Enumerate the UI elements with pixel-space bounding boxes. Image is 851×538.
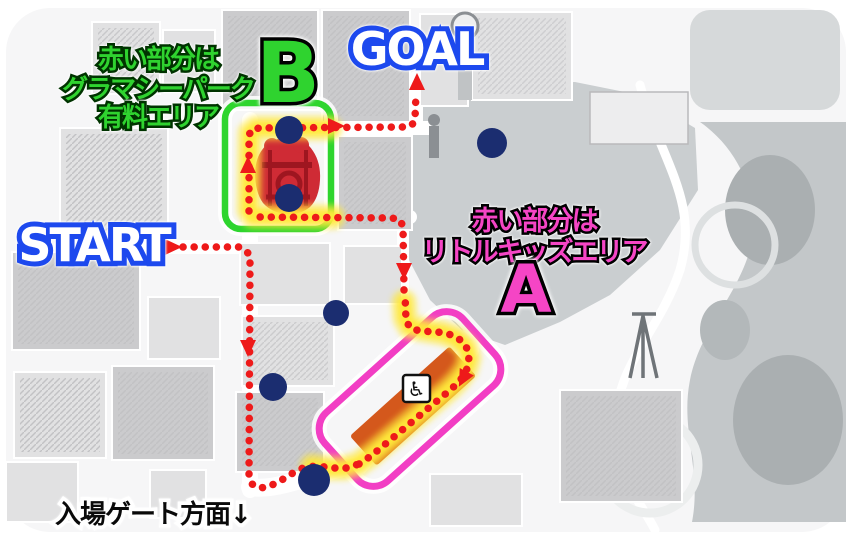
route-overlay: ♿ 赤い部分は グラマシーパーク 有料エリア B GOAL START 赤い部分… xyxy=(0,0,851,538)
wheelchair-icon: ♿ xyxy=(408,377,426,401)
route-dotted-path xyxy=(183,247,250,263)
wheelchair-badge-layer: ♿ xyxy=(403,375,430,402)
spot-marker xyxy=(298,464,330,496)
area-b-note-line1: 赤い部分は xyxy=(98,45,220,75)
gate-direction-label: 入場ゲート方面↓ xyxy=(55,499,251,530)
park-route-map: ♿ 赤い部分は グラマシーパーク 有料エリア B GOAL START 赤い部分… xyxy=(0,0,851,538)
route-arrow xyxy=(396,263,412,280)
route-arrow xyxy=(240,340,256,357)
route-glow xyxy=(312,302,469,468)
area-b-note-line3: 有料エリア xyxy=(98,103,219,133)
goal-label: GOAL xyxy=(351,22,485,76)
area-a-note-line1: 赤い部分は xyxy=(472,205,599,237)
spot-marker xyxy=(477,128,507,158)
marker-b-label: B xyxy=(256,24,320,122)
spot-marker xyxy=(275,184,303,212)
start-label: START xyxy=(18,218,172,272)
marker-a-label: A xyxy=(500,251,551,328)
area-b-note-line2: グラマシーパーク xyxy=(62,75,254,105)
spot-marker xyxy=(323,300,349,326)
spot-marker xyxy=(259,373,287,401)
